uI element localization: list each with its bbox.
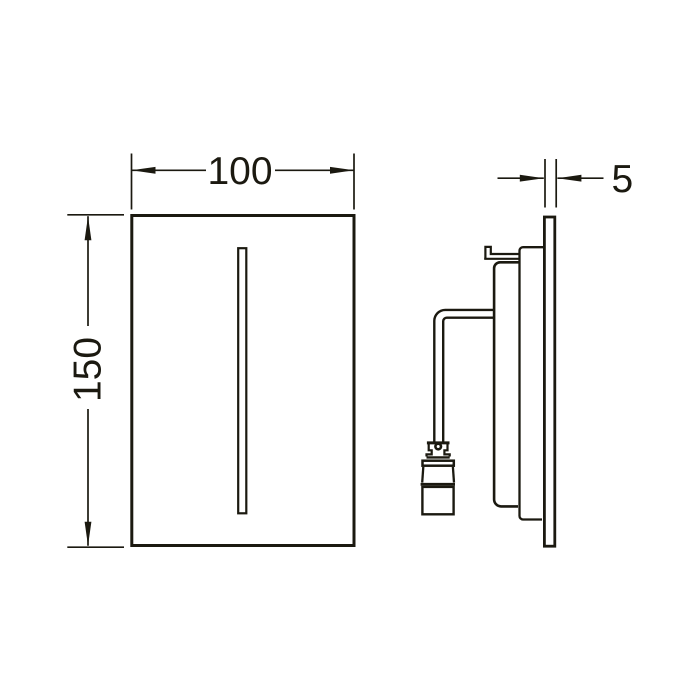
svg-text:150: 150 (66, 337, 109, 402)
svg-text:100: 100 (207, 150, 272, 193)
svg-text:5: 5 (611, 158, 633, 201)
